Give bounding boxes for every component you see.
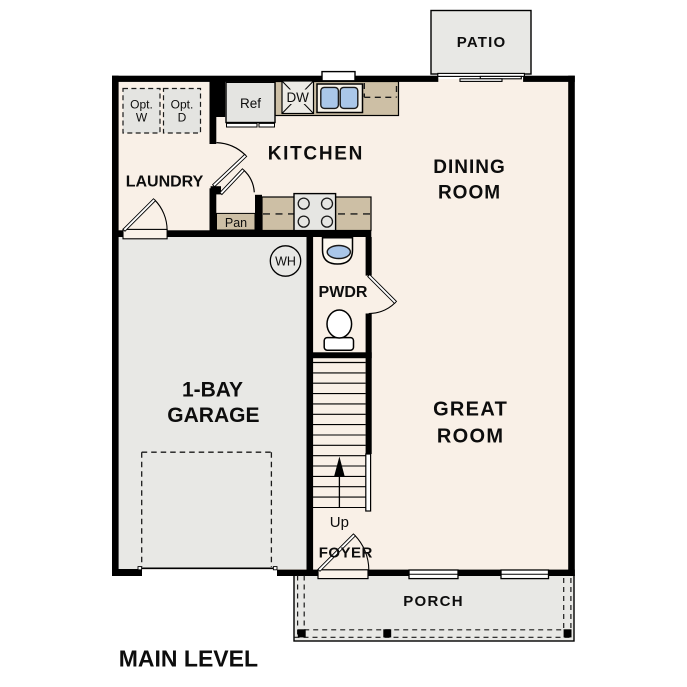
svg-text:Pan: Pan — [225, 216, 247, 230]
svg-text:ROOM: ROOM — [438, 183, 501, 204]
svg-text:LAUNDRY: LAUNDRY — [126, 173, 204, 190]
svg-text:DINING: DINING — [433, 157, 506, 178]
svg-text:Opt.: Opt. — [171, 97, 194, 111]
svg-text:PORCH: PORCH — [403, 593, 464, 610]
svg-text:MAIN LEVEL: MAIN LEVEL — [119, 646, 258, 672]
svg-text:PATIO: PATIO — [457, 34, 507, 51]
svg-text:ROOM: ROOM — [437, 425, 504, 447]
svg-text:GARAGE: GARAGE — [167, 404, 259, 427]
svg-text:PWDR: PWDR — [319, 284, 368, 301]
svg-text:Up: Up — [330, 514, 349, 531]
svg-text:D: D — [178, 111, 187, 125]
svg-text:Ref: Ref — [240, 96, 261, 111]
svg-text:GREAT: GREAT — [433, 398, 508, 420]
svg-text:DW: DW — [286, 90, 309, 105]
svg-text:Opt.: Opt. — [130, 97, 153, 111]
svg-text:WH: WH — [275, 255, 296, 269]
svg-text:KITCHEN: KITCHEN — [268, 144, 364, 165]
svg-text:FOYER: FOYER — [319, 545, 373, 562]
svg-text:1-BAY: 1-BAY — [182, 379, 243, 402]
svg-text:W: W — [136, 111, 148, 125]
